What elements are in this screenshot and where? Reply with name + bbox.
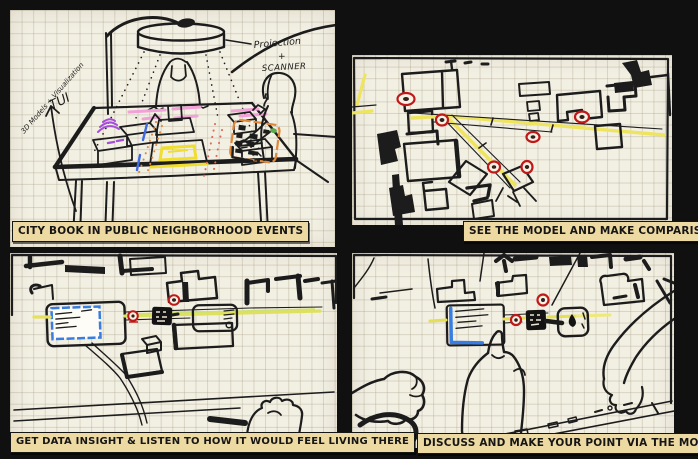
map-marker	[436, 115, 448, 126]
purple-wave-marks	[98, 119, 119, 132]
insight-map-sketch	[10, 253, 337, 448]
city-book-sketch: 3D Models + Visualization TUI Projection…	[10, 10, 335, 247]
map-buildings	[354, 253, 674, 308]
reaching-arm	[603, 291, 674, 414]
panel-data-insight	[10, 253, 337, 448]
map-marker	[538, 295, 549, 306]
table-sketch	[55, 103, 335, 237]
map-marker	[575, 112, 589, 123]
caption-data-insight: GET DATA INSIGHT & LISTEN TO HOW IT WOUL…	[10, 432, 415, 453]
small-blocks	[122, 336, 162, 377]
data-card	[447, 304, 505, 345]
map-marker	[488, 162, 500, 173]
map-buildings	[377, 60, 670, 225]
caption-see-model: SEE THE MODEL AND MAKE COMPARISON	[463, 221, 698, 242]
plus-label: +	[278, 52, 286, 62]
tui-arrow	[46, 106, 76, 211]
map-marker	[128, 311, 138, 322]
storyboard: 3D Models + Visualization TUI Projection…	[0, 0, 698, 459]
projection-label: Projection	[253, 36, 301, 51]
orange-dot-trail	[137, 122, 162, 178]
map-buildings	[26, 256, 336, 308]
caption-discuss: DISCUSS AND MAKE YOUR POINT VIA THE MODE…	[417, 433, 698, 454]
map-marker	[398, 93, 415, 105]
tangible-device	[152, 307, 178, 326]
map-marker	[169, 295, 179, 305]
projector-lamp-sketch	[94, 17, 260, 152]
map-marker	[527, 132, 540, 142]
facilitator-figure	[148, 59, 208, 110]
model-map-sketch	[352, 55, 672, 225]
caption-city-book: CITY BOOK IN PUBLIC NEIGHBORHOOD EVENTS	[12, 221, 309, 242]
map-marker	[522, 161, 533, 173]
discussion-map-sketch	[352, 253, 674, 448]
data-card-building	[46, 302, 125, 347]
data-card	[51, 307, 100, 340]
panel-discuss	[352, 253, 674, 448]
map-marker	[511, 315, 521, 325]
tangible-device	[526, 310, 562, 331]
panel-see-model	[352, 55, 672, 225]
card-note-scribble	[456, 309, 488, 329]
panel-city-book: 3D Models + Visualization TUI Projection…	[10, 10, 335, 247]
red-dot-trail	[204, 124, 222, 176]
scanner-label: SCANNER	[262, 62, 307, 74]
